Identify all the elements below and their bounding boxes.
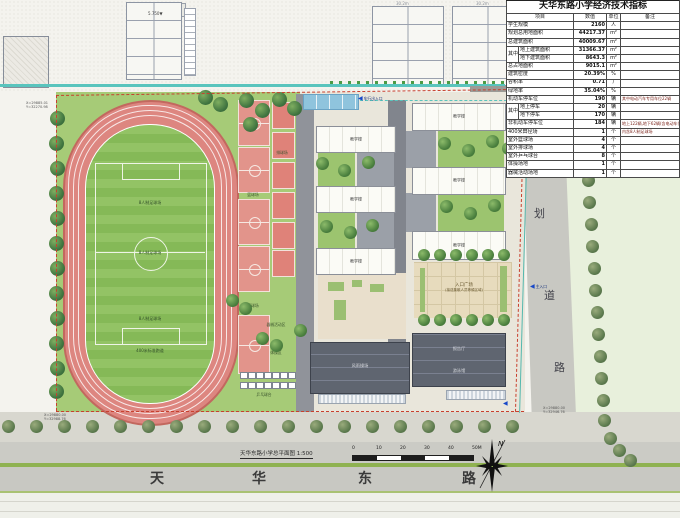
south-road-name-char: 天 [150,468,164,488]
elevation-mark: 5.750▼ [148,11,163,16]
tree [239,93,254,108]
canal-dashed-line [360,100,522,101]
road-median-green [0,463,680,467]
entrance-arrow-icon: ◀ [530,284,535,290]
building-label: 教学楼 [317,136,395,142]
pingpong-table [248,372,256,379]
table-row: 其中地上停车20辆 [507,104,680,112]
teaching-building: 教学楼 [316,248,396,275]
table-header: 项目数值单位备注 [507,14,680,22]
street-tree [478,420,491,433]
pingpong-table [272,382,280,389]
street-tree [583,196,596,209]
street-tree [450,420,463,433]
pingpong-label: 乒乓球台 [242,392,286,398]
table-row: 室外排球场4个 [507,145,680,153]
tree [226,294,239,307]
site-boundary-west [56,95,57,411]
building-label: 教学楼 [317,196,395,202]
teaching-building: 教学楼 [412,103,506,131]
soccer-field-label: 8人制足球场 [125,250,175,256]
east-road-name-char: 道 [544,287,555,303]
building-label: 教学楼 [317,258,395,264]
table-row: 绿地率35.04%% [507,87,680,95]
street-tree [142,420,155,433]
site-boundary-south [56,411,524,412]
teaching-building: 教学楼 [316,186,396,213]
basketball-court [238,246,270,292]
tree [418,314,430,326]
table-row: 总建筑面积40009.67m² [507,38,680,46]
table-title: 天华东路小学经济技术指标 [507,1,680,14]
volleyball-label: 排球场 [270,150,294,156]
volleyball-court [272,222,295,249]
south-road-lane [0,442,680,464]
street-tree [198,420,211,433]
street-tree [585,218,598,231]
street-tree [58,420,71,433]
tree [462,144,475,157]
table-row: 器械活动场地1个 [507,169,680,177]
tree [239,302,252,315]
street-tree [254,420,267,433]
tree [255,103,270,118]
street-tree [114,420,127,433]
terrace-planter [370,284,384,292]
tree [482,314,494,326]
teaching-building: 教学楼 [412,167,506,195]
pingpong-table [280,372,288,379]
tree [440,200,453,213]
tree [488,199,501,212]
tree [50,261,65,276]
east-road-name-char: 路 [554,359,565,375]
street-tree [86,420,99,433]
street-tree [595,372,608,385]
table-row: 体操场地1个 [507,161,680,169]
canal-line [0,84,505,87]
verge-line [0,511,680,512]
street-tree [586,240,599,253]
track-label: 400米标准跑道 [118,348,182,354]
bike-rack [318,394,406,404]
street-tree [613,444,626,457]
south-road-name-char: 华 [252,468,266,488]
plaza-label: 入口广场 (接送集散人员等候区域) [424,282,504,293]
street-tree [2,420,15,433]
tree [438,137,451,150]
parking-grid [372,6,444,86]
south-verge [0,493,680,518]
east-road-name-char: 划 [534,205,545,221]
dimension-label: 30.2m [396,1,409,6]
tree [498,314,510,326]
street-tree [422,420,435,433]
tree [287,101,302,116]
bike-rack [446,390,506,400]
coordinate-label: X=29880.00Y=32988.76 [44,413,66,421]
tree [50,161,65,176]
pingpong-table [264,372,272,379]
context-building [3,36,49,88]
building-label: 教学楼 [413,242,505,248]
road-edge-green [0,491,680,493]
pingpong-table [240,382,248,389]
tree [213,97,228,112]
tree [50,361,65,376]
terrace-planter [334,300,346,320]
tree [338,164,351,177]
street-tree [589,284,602,297]
table-row: 地下停车170辆 [507,112,680,120]
table-row: 建筑密度20.39%% [507,71,680,79]
north-letter: N [498,440,504,448]
volleyball-court [272,192,295,219]
table-row: 机动车停车位190辆其中电动汽车专用车位22辆 [507,95,680,103]
drawing-caption: 天华东路小学总平面图 1:500 [240,449,313,459]
indicators-table: 天华东路小学经济技术指标项目数值单位备注学生规模2160人规划总用地面积4421… [506,0,680,178]
pingpong-table [256,372,264,379]
tree [316,157,329,170]
volleyball-court [272,250,295,277]
tree [50,311,65,326]
south-road-name-char: 东 [358,468,372,488]
connecting-roof [406,131,436,168]
street-tree [594,350,607,363]
tree [256,332,269,345]
terrace-planter [352,280,362,287]
tree [498,249,510,261]
hall-building: 报告厅 游泳馆 [412,333,506,387]
tree [482,249,494,261]
tree [320,220,333,233]
tree [366,219,379,232]
street-tree [310,420,323,433]
tree [418,249,430,261]
street-tree [597,394,610,407]
street-tree [30,420,43,433]
basketball-label: 篮球场 [241,192,265,198]
context-stall-row [184,8,196,76]
street-tree [282,420,295,433]
tree [486,135,499,148]
tree [270,339,283,352]
coordinate-label: X=29880.00Y=32946.76 [543,406,565,414]
south-road-lane [0,467,680,491]
north-arrow: N [472,436,512,492]
table-row: 非机动车停车位184辆地上122辆,地下62辆(含电动车位) [507,120,680,128]
tree [466,314,478,326]
pingpong-table [264,382,272,389]
street-tree [506,420,519,433]
gym-building: 风雨操场 [310,342,410,394]
table-row: 规划总用地面积44217.37m² [507,30,680,38]
tree [362,156,375,169]
tree [466,249,478,261]
site-plan-drawing: 5.750▼ 30.2m 30.2m 8人制足球场 8人制足球场 8人制足球场 … [0,0,680,518]
entrance-arrow-icon: ◀ [358,96,363,102]
table-row: 400米田径场1个内含8人制足球场 [507,128,680,136]
scalebar [352,455,474,461]
entrance-water-feature [303,94,359,110]
connecting-roof [357,151,394,186]
pingpong-table [240,372,248,379]
street-tree [226,420,239,433]
street-tree [170,420,183,433]
soccer-field-label: 8人制足球场 [125,316,175,322]
tree [272,92,287,107]
street-tree [591,306,604,319]
tree [434,314,446,326]
tree [294,324,307,337]
table-row: 总占地面积9015.1m² [507,63,680,71]
street-tree [592,328,605,341]
coordinate-label: X=29885.01Y=32270.98 [26,101,48,109]
pingpong-table [280,382,288,389]
tree [344,226,357,239]
tree [50,211,65,226]
teaching-building: 教学楼 [316,126,396,153]
apparatus-area-label: 器械活动区 [258,322,294,328]
pingpong-table [248,382,256,389]
south-entrance-marker: ◀ [503,401,508,407]
table-row: 室外乒乓球台8个 [507,153,680,161]
street-tree [394,420,407,433]
penalty-box [122,328,180,345]
building-label: 教学楼 [413,178,505,184]
hedge-dots [330,81,505,84]
table-row: 学生规模2160人 [507,22,680,30]
street-tree [624,454,637,467]
basketball-court [238,147,270,193]
pingpong-table [272,372,280,379]
entrance-arrow-icon: ◀ [503,401,508,407]
street-tree [604,432,617,445]
pingpong-table [288,382,296,389]
dimension-label: 30.2m [476,1,489,6]
terrace-planter [328,282,344,291]
pingpong-table [288,372,296,379]
north-entrance-marker: ◀ 车行出入口 [358,96,383,102]
connecting-roof [406,193,436,232]
tree [450,314,462,326]
penalty-box [122,163,180,180]
street-tree [366,420,379,433]
tree [434,249,446,261]
table-row: 容积率0.71/ [507,79,680,87]
volleyball-court [272,162,295,189]
table-row: 其中地上建筑面积31366.37m² [507,46,680,54]
verge-line [0,501,680,502]
street-tree [338,420,351,433]
table-row: 地下建筑面积8643.3m² [507,54,680,62]
soccer-field-label: 8人制足球场 [125,200,175,206]
street-tree [598,414,611,427]
basketball-court [238,199,270,245]
tree [464,207,477,220]
tree [243,117,258,132]
street-tree [588,262,601,275]
pingpong-table [256,382,264,389]
table-row: 室外篮球场4个 [507,136,680,144]
tree [450,249,462,261]
tree [50,111,65,126]
building-label: 教学楼 [413,114,505,120]
